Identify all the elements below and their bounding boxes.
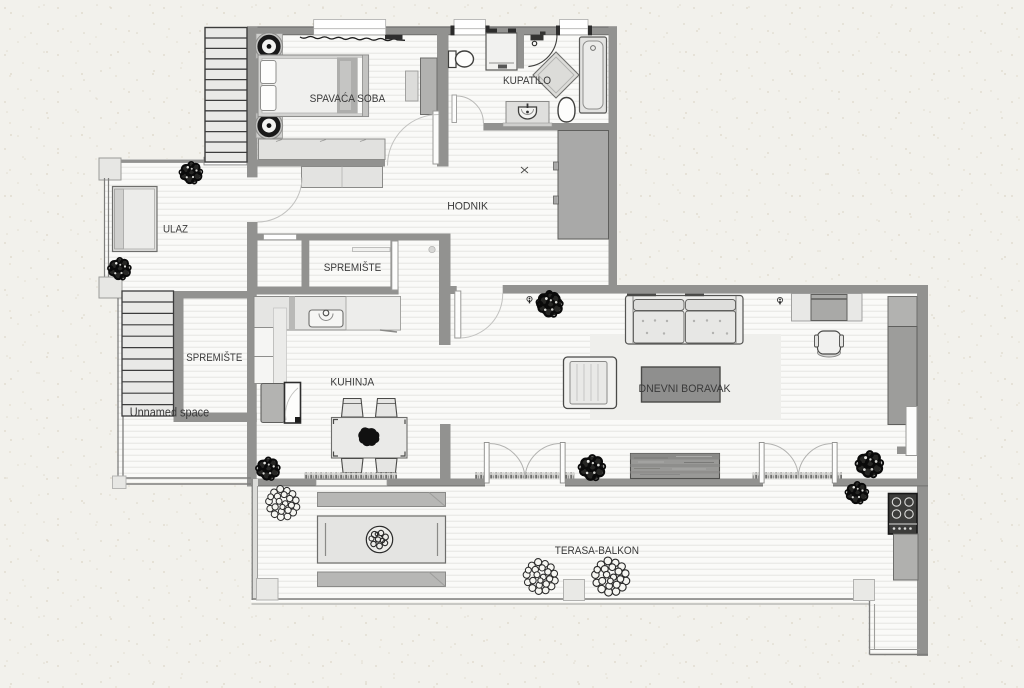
svg-text:SPREMIŠTE: SPREMIŠTE: [324, 261, 382, 274]
svg-text:TERASA-BALKON: TERASA-BALKON: [555, 545, 639, 557]
svg-text:Unnamed space: Unnamed space: [130, 405, 210, 419]
svg-text:ULAZ: ULAZ: [163, 224, 188, 236]
svg-text:KUHINJA: KUHINJA: [330, 376, 374, 388]
svg-text:HODNIK: HODNIK: [447, 201, 488, 213]
svg-text:SPREMIŠTE: SPREMIŠTE: [186, 351, 242, 364]
svg-text:DNEVNI BORAVAK: DNEVNI BORAVAK: [639, 383, 732, 395]
svg-text:KUPATILO: KUPATILO: [503, 75, 551, 87]
svg-text:SPAVAĆA SOBA: SPAVAĆA SOBA: [310, 92, 386, 105]
